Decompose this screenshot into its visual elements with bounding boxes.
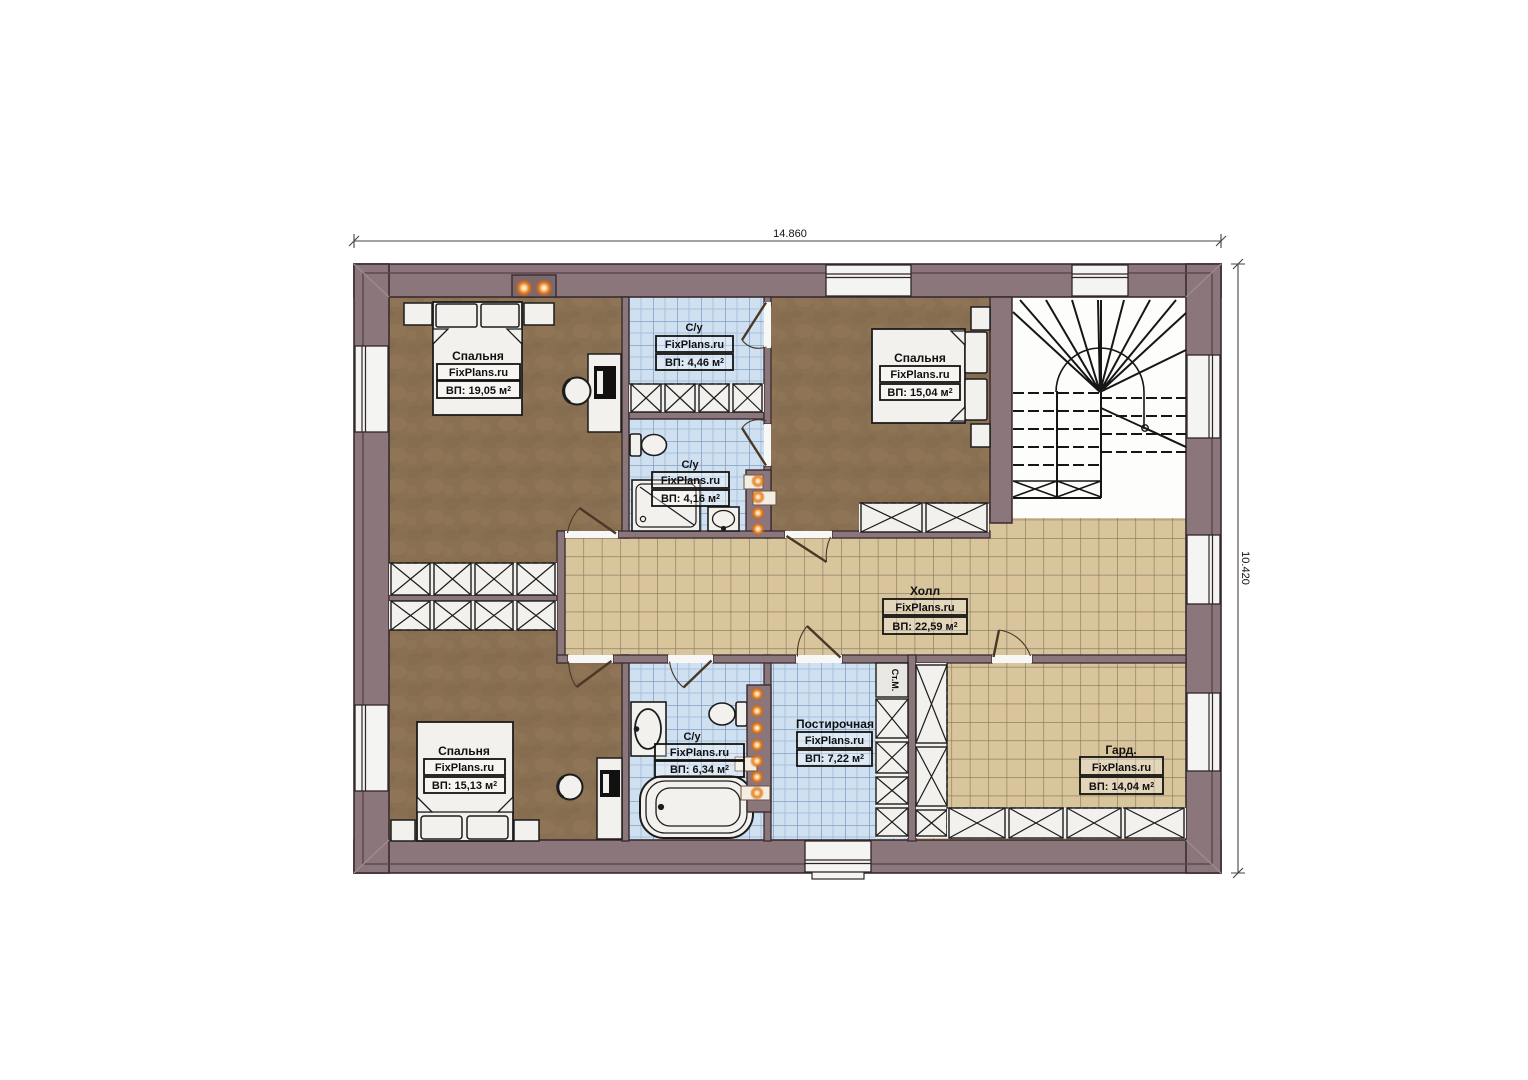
svg-text:ВП: 15,04 м2: ВП: 15,04 м2 xyxy=(887,387,952,399)
svg-text:С/у: С/у xyxy=(683,731,701,743)
svg-text:Спальня: Спальня xyxy=(452,349,504,363)
svg-text:10.420: 10.420 xyxy=(1239,551,1251,585)
svg-text:Ст.М.: Ст.М. xyxy=(890,669,900,692)
svg-text:С/у: С/у xyxy=(681,459,699,471)
svg-text:ВП: 7,22 м2: ВП: 7,22 м2 xyxy=(805,753,864,765)
svg-text:FixPlans.ru: FixPlans.ru xyxy=(805,735,864,747)
svg-text:FixPlans.ru: FixPlans.ru xyxy=(895,602,954,614)
svg-text:FixPlans.ru: FixPlans.ru xyxy=(890,369,949,381)
svg-text:FixPlans.ru: FixPlans.ru xyxy=(1092,762,1151,774)
svg-text:Спальня: Спальня xyxy=(894,351,946,365)
svg-text:ВП: 4,16 м2: ВП: 4,16 м2 xyxy=(661,493,720,505)
svg-text:Спальня: Спальня xyxy=(438,744,490,758)
svg-text:FixPlans.ru: FixPlans.ru xyxy=(435,762,494,774)
svg-text:ВП: 19,05 м2: ВП: 19,05 м2 xyxy=(446,385,511,397)
svg-text:С/у: С/у xyxy=(685,322,703,334)
svg-text:FixPlans.ru: FixPlans.ru xyxy=(670,747,729,759)
svg-text:ВП: 14,04 м2: ВП: 14,04 м2 xyxy=(1089,781,1154,793)
svg-text:Холл: Холл xyxy=(910,584,940,598)
svg-text:ВП: 22,59 м2: ВП: 22,59 м2 xyxy=(892,621,957,633)
svg-text:ВП: 4,46 м2: ВП: 4,46 м2 xyxy=(665,357,724,369)
svg-text:FixPlans.ru: FixPlans.ru xyxy=(665,339,724,351)
svg-text:ВП: 15,13 м2: ВП: 15,13 м2 xyxy=(432,780,497,792)
svg-text:Гард.: Гард. xyxy=(1105,743,1136,757)
svg-text:14.860: 14.860 xyxy=(773,228,807,240)
svg-text:FixPlans.ru: FixPlans.ru xyxy=(661,475,720,487)
svg-text:FixPlans.ru: FixPlans.ru xyxy=(449,367,508,379)
svg-text:ВП: 6,34 м2: ВП: 6,34 м2 xyxy=(670,764,729,776)
svg-text:Постирочная: Постирочная xyxy=(796,717,874,731)
